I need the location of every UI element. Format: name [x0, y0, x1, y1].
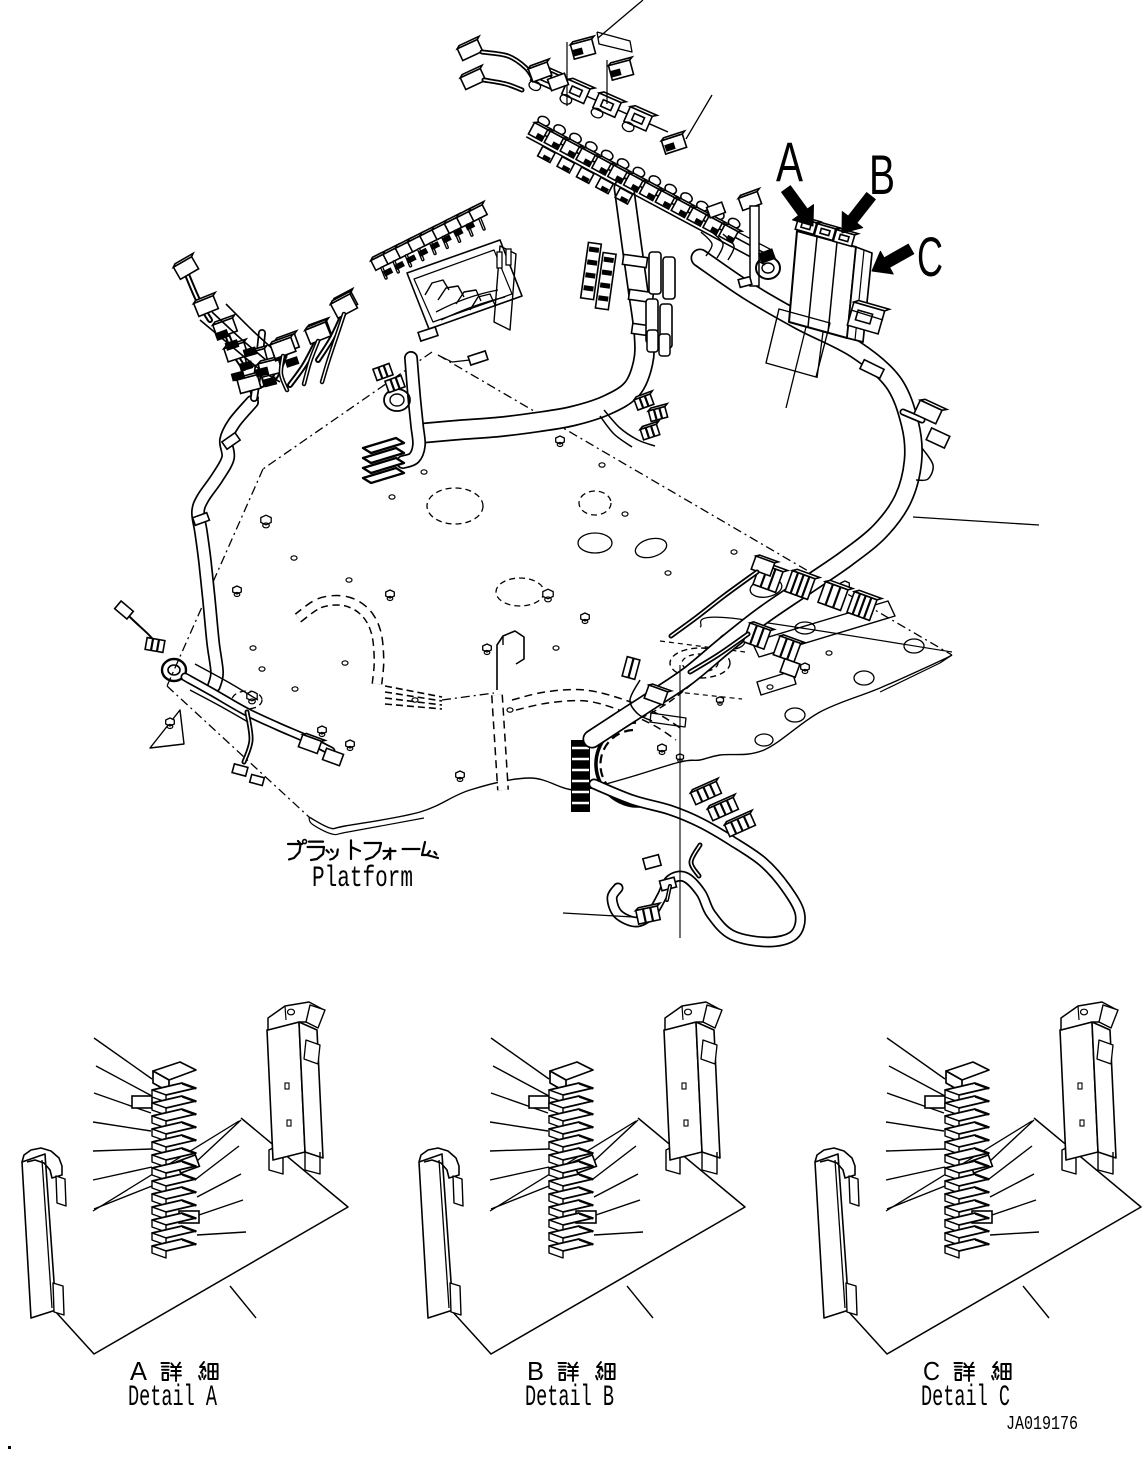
svg-text:Detail A: Detail A [128, 1381, 217, 1415]
svg-text:C: C [917, 225, 943, 288]
svg-text:JA019176: JA019176 [1006, 1413, 1078, 1435]
svg-text:Platform: Platform [312, 862, 413, 896]
svg-text:A: A [776, 130, 803, 193]
svg-text:B: B [869, 143, 895, 206]
svg-text:Detail B: Detail B [525, 1381, 614, 1415]
svg-text:Detail C: Detail C [921, 1381, 1010, 1415]
